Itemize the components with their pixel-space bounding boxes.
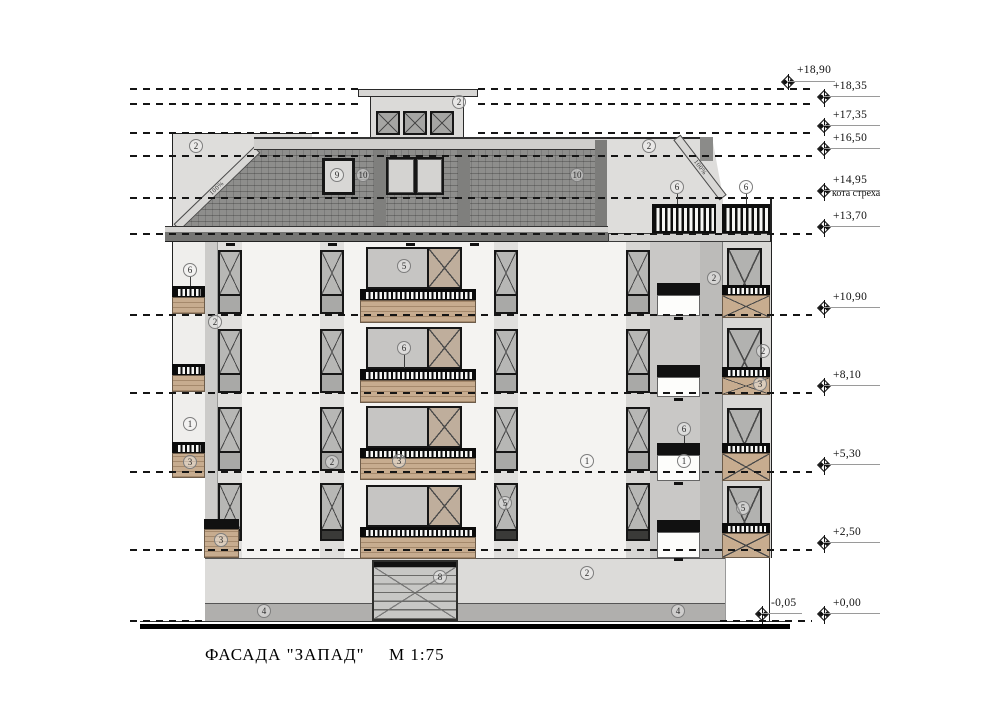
level-line-18-90 — [130, 88, 358, 90]
sill-tick — [328, 243, 337, 246]
strip-lower-pane — [628, 453, 648, 469]
level-line-0-00 — [720, 620, 812, 622]
callout-2-gray-section: 2 — [707, 271, 721, 285]
callout-10-roof-left: 10 — [356, 168, 370, 182]
callout-2-tower: 2 — [452, 95, 466, 109]
strip-sill — [322, 531, 342, 539]
strip-glass — [628, 485, 648, 529]
terrace-railing-right — [722, 204, 772, 233]
roof-window-double — [386, 157, 444, 195]
wing-railing-r3 — [722, 443, 770, 453]
right-gable-chimney-band — [700, 137, 713, 161]
center-window-glass — [368, 487, 427, 525]
wing-parapet-r4 — [722, 533, 770, 558]
center-window-r2 — [366, 327, 462, 369]
roof-window-pane — [388, 159, 414, 193]
strip-glass — [496, 252, 516, 294]
sill-tick — [674, 317, 683, 320]
facade-drawing-canvas: 100% 100% — [0, 0, 998, 710]
strip-lower-pane — [220, 453, 240, 469]
loggia-lintel-r1 — [657, 283, 700, 295]
callout-5-wing: 5 — [736, 501, 750, 515]
callout-leader — [190, 277, 191, 286]
elevation-underline — [824, 96, 880, 97]
left-pier — [205, 242, 218, 558]
strip1-window-r3 — [218, 407, 242, 471]
level-line-18-35 — [478, 103, 812, 105]
callout-4-plinth-right: 4 — [671, 604, 685, 618]
strip-glass — [220, 409, 240, 451]
strip2-window-r4 — [320, 483, 344, 541]
elevation-label: -0,05 — [771, 597, 796, 609]
strip4-window-r1 — [626, 250, 650, 314]
callout-3-center-r3: 3 — [392, 454, 406, 468]
strip-lower-pane — [628, 296, 648, 312]
elevation-underline — [762, 613, 802, 614]
strip-glass — [220, 331, 240, 373]
elevation-marker-tick — [824, 141, 825, 159]
plinth-bottom-line — [140, 621, 790, 622]
strip3-window-r3 — [494, 407, 518, 471]
callout-10-roof-right: 10 — [570, 168, 584, 182]
strip-glass — [322, 331, 342, 373]
elevation-underline — [788, 81, 835, 82]
callout-3-left-wing: 3 — [183, 455, 197, 469]
center-window-r4 — [366, 485, 462, 527]
center-window-casement — [429, 249, 460, 287]
callout-8-garage: 8 — [433, 570, 447, 584]
elevation-marker-tick — [824, 606, 825, 624]
left-wing-railing-r2 — [172, 364, 205, 375]
strip-lower-pane — [322, 375, 342, 391]
elevation-marker-tick — [824, 535, 825, 553]
sill-tick — [406, 243, 415, 246]
facade-name: ФАСАДА "ЗАПАД" — [205, 645, 365, 664]
plinth-band — [205, 603, 725, 622]
elevation-underline — [824, 613, 880, 614]
left-wing-parapet-r1 — [172, 297, 205, 314]
strip-lower-pane — [220, 375, 240, 391]
louver-glass — [405, 113, 425, 133]
callout-9-roof-window: 9 — [330, 168, 344, 182]
strip-lower-pane — [220, 296, 240, 312]
strip-glass — [628, 252, 648, 294]
elevation-underline — [824, 148, 880, 149]
elevation-label: +0,00 — [833, 597, 861, 609]
callout-6-center-r2: 6 — [397, 341, 411, 355]
callout-6-loggia: 6 — [677, 422, 691, 436]
tower-left-wall-band — [374, 150, 386, 228]
sill-tick — [674, 482, 683, 485]
level-line-14-95 — [130, 197, 812, 199]
elevation-marker-tick — [824, 457, 825, 475]
center-window-r3 — [366, 406, 462, 448]
callout-1-left-wing: 1 — [183, 417, 197, 431]
callout-2-left-gable: 2 — [189, 139, 203, 153]
terrace-railing-left — [652, 204, 716, 233]
elevation-label: +16,50 — [833, 132, 867, 144]
level-line-16-50 — [130, 155, 812, 157]
loggia-opening-r2 — [657, 377, 700, 397]
callout-leader — [677, 194, 678, 204]
elevation-marker-tick — [824, 118, 825, 136]
strip-glass — [220, 252, 240, 294]
elevation-label: +13,70 — [833, 210, 867, 222]
elevation-label: +8,10 — [833, 369, 861, 381]
strip-lower-pane — [496, 296, 516, 312]
strip-sill — [496, 531, 516, 539]
center-balcony-parapet-r3 — [360, 458, 476, 480]
sill-tick — [674, 398, 683, 401]
strip4-window-r4 — [626, 483, 650, 541]
wing-parapet-r3 — [722, 453, 770, 481]
elevation-underline — [824, 226, 880, 227]
elevation-underline — [824, 385, 880, 386]
strip1-window-r2 — [218, 329, 242, 393]
callout-2-strip2: 2 — [325, 455, 339, 469]
strip3-window-r1 — [494, 250, 518, 314]
tower-louver-window-2 — [403, 111, 427, 135]
elevation-underline — [824, 464, 880, 465]
level-line-17-35 — [478, 132, 812, 134]
callout-6-left-wing: 6 — [183, 263, 197, 277]
center-window-glass — [368, 408, 427, 446]
strip4-window-r2 — [626, 329, 650, 393]
elevation-marker-tick — [788, 74, 789, 90]
center-balcony-parapet-r4 — [360, 537, 476, 559]
elevation-marker-tick — [762, 606, 763, 624]
left-wing-railing-r3 — [172, 442, 205, 453]
callout-2-ground: 2 — [580, 566, 594, 580]
strip-lower-pane — [322, 296, 342, 312]
elevation-label: +14,95 — [833, 174, 867, 186]
callout-2-pier: 2 — [208, 315, 222, 329]
strip4-window-r3 — [626, 407, 650, 471]
loggia-opening-r4 — [657, 532, 700, 558]
level-line-10-90 — [130, 314, 812, 316]
elevation-label: +18,90 — [797, 64, 831, 76]
callout-2-wing: 2 — [756, 344, 770, 358]
strip-lower-pane — [628, 375, 648, 391]
elevation-marker-tick — [824, 219, 825, 237]
strip3-window-r4 — [494, 483, 518, 541]
elevation-underline — [824, 307, 880, 308]
center-balcony-railing-r2 — [360, 369, 476, 380]
level-line-2-50 — [130, 549, 812, 551]
elevation-underline — [824, 542, 880, 543]
center-window-casement — [429, 487, 460, 525]
elevation-label: +2,50 — [833, 526, 861, 538]
elevation-note: кота стреха — [832, 188, 880, 199]
level-line-8-10 — [130, 392, 812, 394]
wing-railing-r2 — [722, 367, 770, 377]
sill-tick — [674, 558, 683, 561]
tower-louver-window-1 — [376, 111, 400, 135]
strip-glass — [496, 409, 516, 451]
loggia-lintel-r3 — [657, 443, 700, 455]
strip3-window-r2 — [494, 329, 518, 393]
level-line-5-30 — [130, 471, 812, 473]
callout-6-terrace-right: 6 — [739, 180, 753, 194]
elevation-label: +5,30 — [833, 448, 861, 460]
left-wing-parapet-r2 — [172, 375, 205, 392]
level-line-0-00 — [130, 620, 207, 622]
right-gray-shadow — [700, 242, 722, 558]
sill-tick — [470, 243, 479, 246]
level-line-17-35 — [130, 132, 358, 134]
wing-railing-r4 — [722, 523, 770, 533]
elevation-label: +17,35 — [833, 109, 867, 121]
strip-glass — [628, 409, 648, 451]
strip1-window-r1 — [218, 250, 242, 314]
loggia-lintel-r2 — [657, 365, 700, 377]
center-balcony-railing-r3 — [360, 448, 476, 458]
callout-1-loggia: 1 — [677, 454, 691, 468]
strip2-window-r1 — [320, 250, 344, 314]
right-gable-top-edge — [607, 137, 713, 139]
center-window-casement — [429, 408, 460, 446]
drawing-title: ФАСАДА "ЗАПАД" М 1:75 — [205, 645, 445, 665]
strip2-window-r2 — [320, 329, 344, 393]
wing-railing-r1 — [722, 285, 770, 295]
garage-door-frame — [372, 560, 458, 621]
elevation-label: +18,35 — [833, 80, 867, 92]
strip-lower-pane — [496, 375, 516, 391]
roof-ridge-band — [254, 137, 608, 150]
roof-right-edge-band — [595, 140, 608, 233]
callout-5-strip3: 5 — [498, 496, 512, 510]
callout-3-left-wing-low: 3 — [214, 533, 228, 547]
elevation-marker-tick — [824, 183, 825, 201]
callout-1-main-wall: 1 — [580, 454, 594, 468]
loggia-opening-r1 — [657, 295, 700, 316]
elevation-underline — [824, 125, 880, 126]
center-window-r1 — [366, 247, 462, 289]
louver-glass — [432, 113, 452, 133]
elevation-marker-tick — [824, 89, 825, 107]
elevation-label: +10,90 — [833, 291, 867, 303]
callout-leader — [404, 355, 405, 368]
callout-5-center-r1: 5 — [397, 259, 411, 273]
tower-right-wall-band — [458, 150, 470, 228]
strip-glass — [322, 252, 342, 294]
left-wing-railing-r1 — [172, 286, 205, 297]
strip-sill — [628, 531, 648, 539]
sill-tick — [226, 243, 235, 246]
strip-glass — [322, 485, 342, 529]
strip-lower-pane — [496, 453, 516, 469]
loggia-lintel-r4 — [657, 520, 700, 532]
callout-4-plinth-left: 4 — [257, 604, 271, 618]
level-line-18-35 — [130, 103, 358, 105]
ground-floor-wall — [205, 558, 725, 604]
callout-6-terrace-left: 6 — [670, 180, 684, 194]
louver-glass — [378, 113, 398, 133]
strip-glass — [628, 331, 648, 373]
level-line-13-70 — [130, 233, 812, 235]
center-balcony-railing-r1 — [360, 289, 476, 300]
callout-2-right-gable: 2 — [642, 139, 656, 153]
callout-3-wing: 3 — [753, 377, 767, 391]
drawing-scale: М 1:75 — [389, 645, 445, 664]
tower-louver-window-3 — [430, 111, 454, 135]
elevation-marker-tick — [824, 378, 825, 396]
center-window-casement — [429, 329, 460, 367]
facade-right-edge-line — [770, 197, 772, 242]
strip-glass — [322, 409, 342, 451]
left-wing-lintel-r4 — [204, 519, 239, 529]
ground-line — [140, 624, 790, 629]
center-balcony-railing-r4 — [360, 527, 476, 537]
strip-glass — [496, 331, 516, 373]
callout-leader — [684, 436, 685, 443]
elevation-marker-tick — [824, 300, 825, 318]
callout-leader — [746, 194, 747, 204]
roof-window-pane — [417, 159, 443, 193]
level-line-18-90 — [478, 88, 812, 90]
center-balcony-parapet-r1 — [360, 300, 476, 323]
